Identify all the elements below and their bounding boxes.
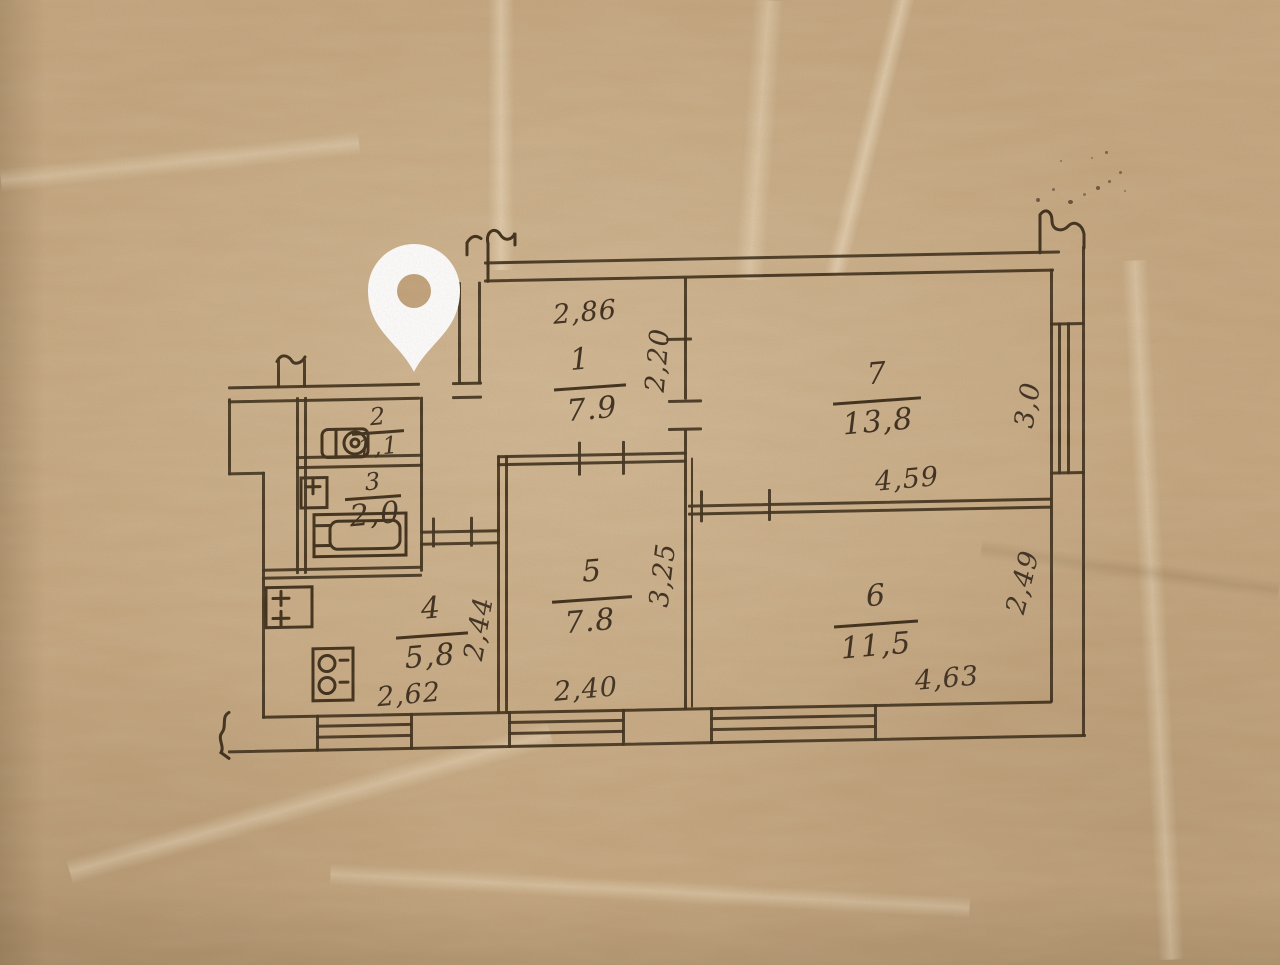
room-5-number: 5 (581, 553, 603, 590)
dim-hall-depth: 2,20 (640, 327, 676, 393)
ink-speckle (1068, 200, 1073, 204)
room-1-number: 1 (569, 341, 591, 378)
sink-icon (301, 478, 327, 508)
dim-room7-width: 4,59 (874, 461, 940, 498)
dim-hall-width: 2,86 (552, 294, 618, 331)
dim-room6-width: 4,63 (914, 660, 980, 697)
room-3-number: 3 (364, 467, 382, 496)
room-6-area: 11,5 (839, 625, 912, 666)
heater-icon (266, 587, 312, 628)
ink-speckle (1124, 190, 1126, 192)
room-7-number: 7 (866, 356, 888, 393)
ink-speckle (1096, 186, 1100, 190)
stove-icon (313, 648, 353, 701)
ink-speckle (1091, 157, 1093, 159)
dim-room5-width: 2,40 (553, 671, 619, 708)
room-3-area: 2,0 (348, 495, 401, 534)
room-2-number: 2 (369, 402, 387, 431)
ink-speckle (1108, 180, 1111, 183)
ink-speckle (1060, 160, 1062, 162)
room-7-area: 13,8 (841, 401, 914, 442)
ink-speckle (1044, 210, 1046, 212)
room-2-area: 1,1 (356, 431, 399, 463)
room-5-area: 7.8 (563, 602, 616, 641)
ink-speckle (1083, 193, 1086, 196)
break-squiggle-top-left (467, 230, 515, 282)
ink-speckle (1105, 151, 1108, 154)
ink-speckle (1052, 188, 1055, 191)
break-squiggle-top-right (1040, 210, 1084, 253)
room-4-area: 5,8 (403, 637, 456, 676)
ink-speckle (1119, 171, 1122, 174)
room-4-number: 4 (420, 590, 442, 627)
kraft-paper-photo: 1 7.9 2 1,1 3 2,0 4 5,8 5 7.8 6 11,5 7 1… (0, 0, 1280, 965)
floor-plan: 1 7.9 2 1,1 3 2,0 4 5,8 5 7.8 6 11,5 7 1… (0, 0, 1280, 965)
room-6-number: 6 (865, 578, 887, 615)
ink-speckle (1036, 198, 1040, 202)
break-squiggle-stub (277, 355, 305, 363)
break-squiggle-bottom-left (220, 712, 229, 758)
room-1-area: 7.9 (565, 390, 618, 429)
dim-kitchen-width: 2,62 (376, 677, 442, 714)
